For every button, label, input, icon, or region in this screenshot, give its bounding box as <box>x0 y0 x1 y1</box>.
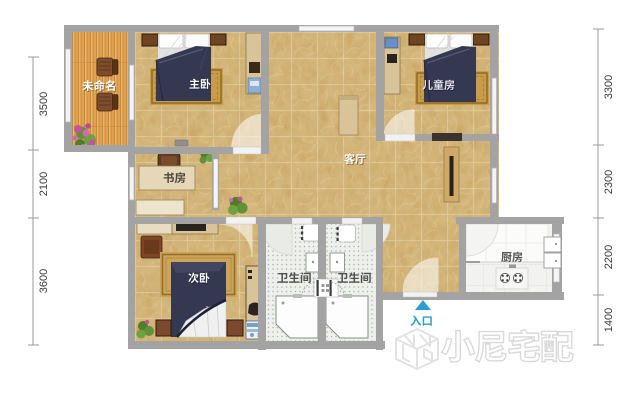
svg-text:3300: 3300 <box>603 75 615 99</box>
svg-text:3600: 3600 <box>38 269 50 293</box>
svg-text:3500: 3500 <box>38 92 50 116</box>
svg-text:1400: 1400 <box>603 308 615 332</box>
svg-text:2200: 2200 <box>603 245 615 269</box>
svg-text:2100: 2100 <box>38 172 50 196</box>
svg-text:2300: 2300 <box>603 170 615 194</box>
